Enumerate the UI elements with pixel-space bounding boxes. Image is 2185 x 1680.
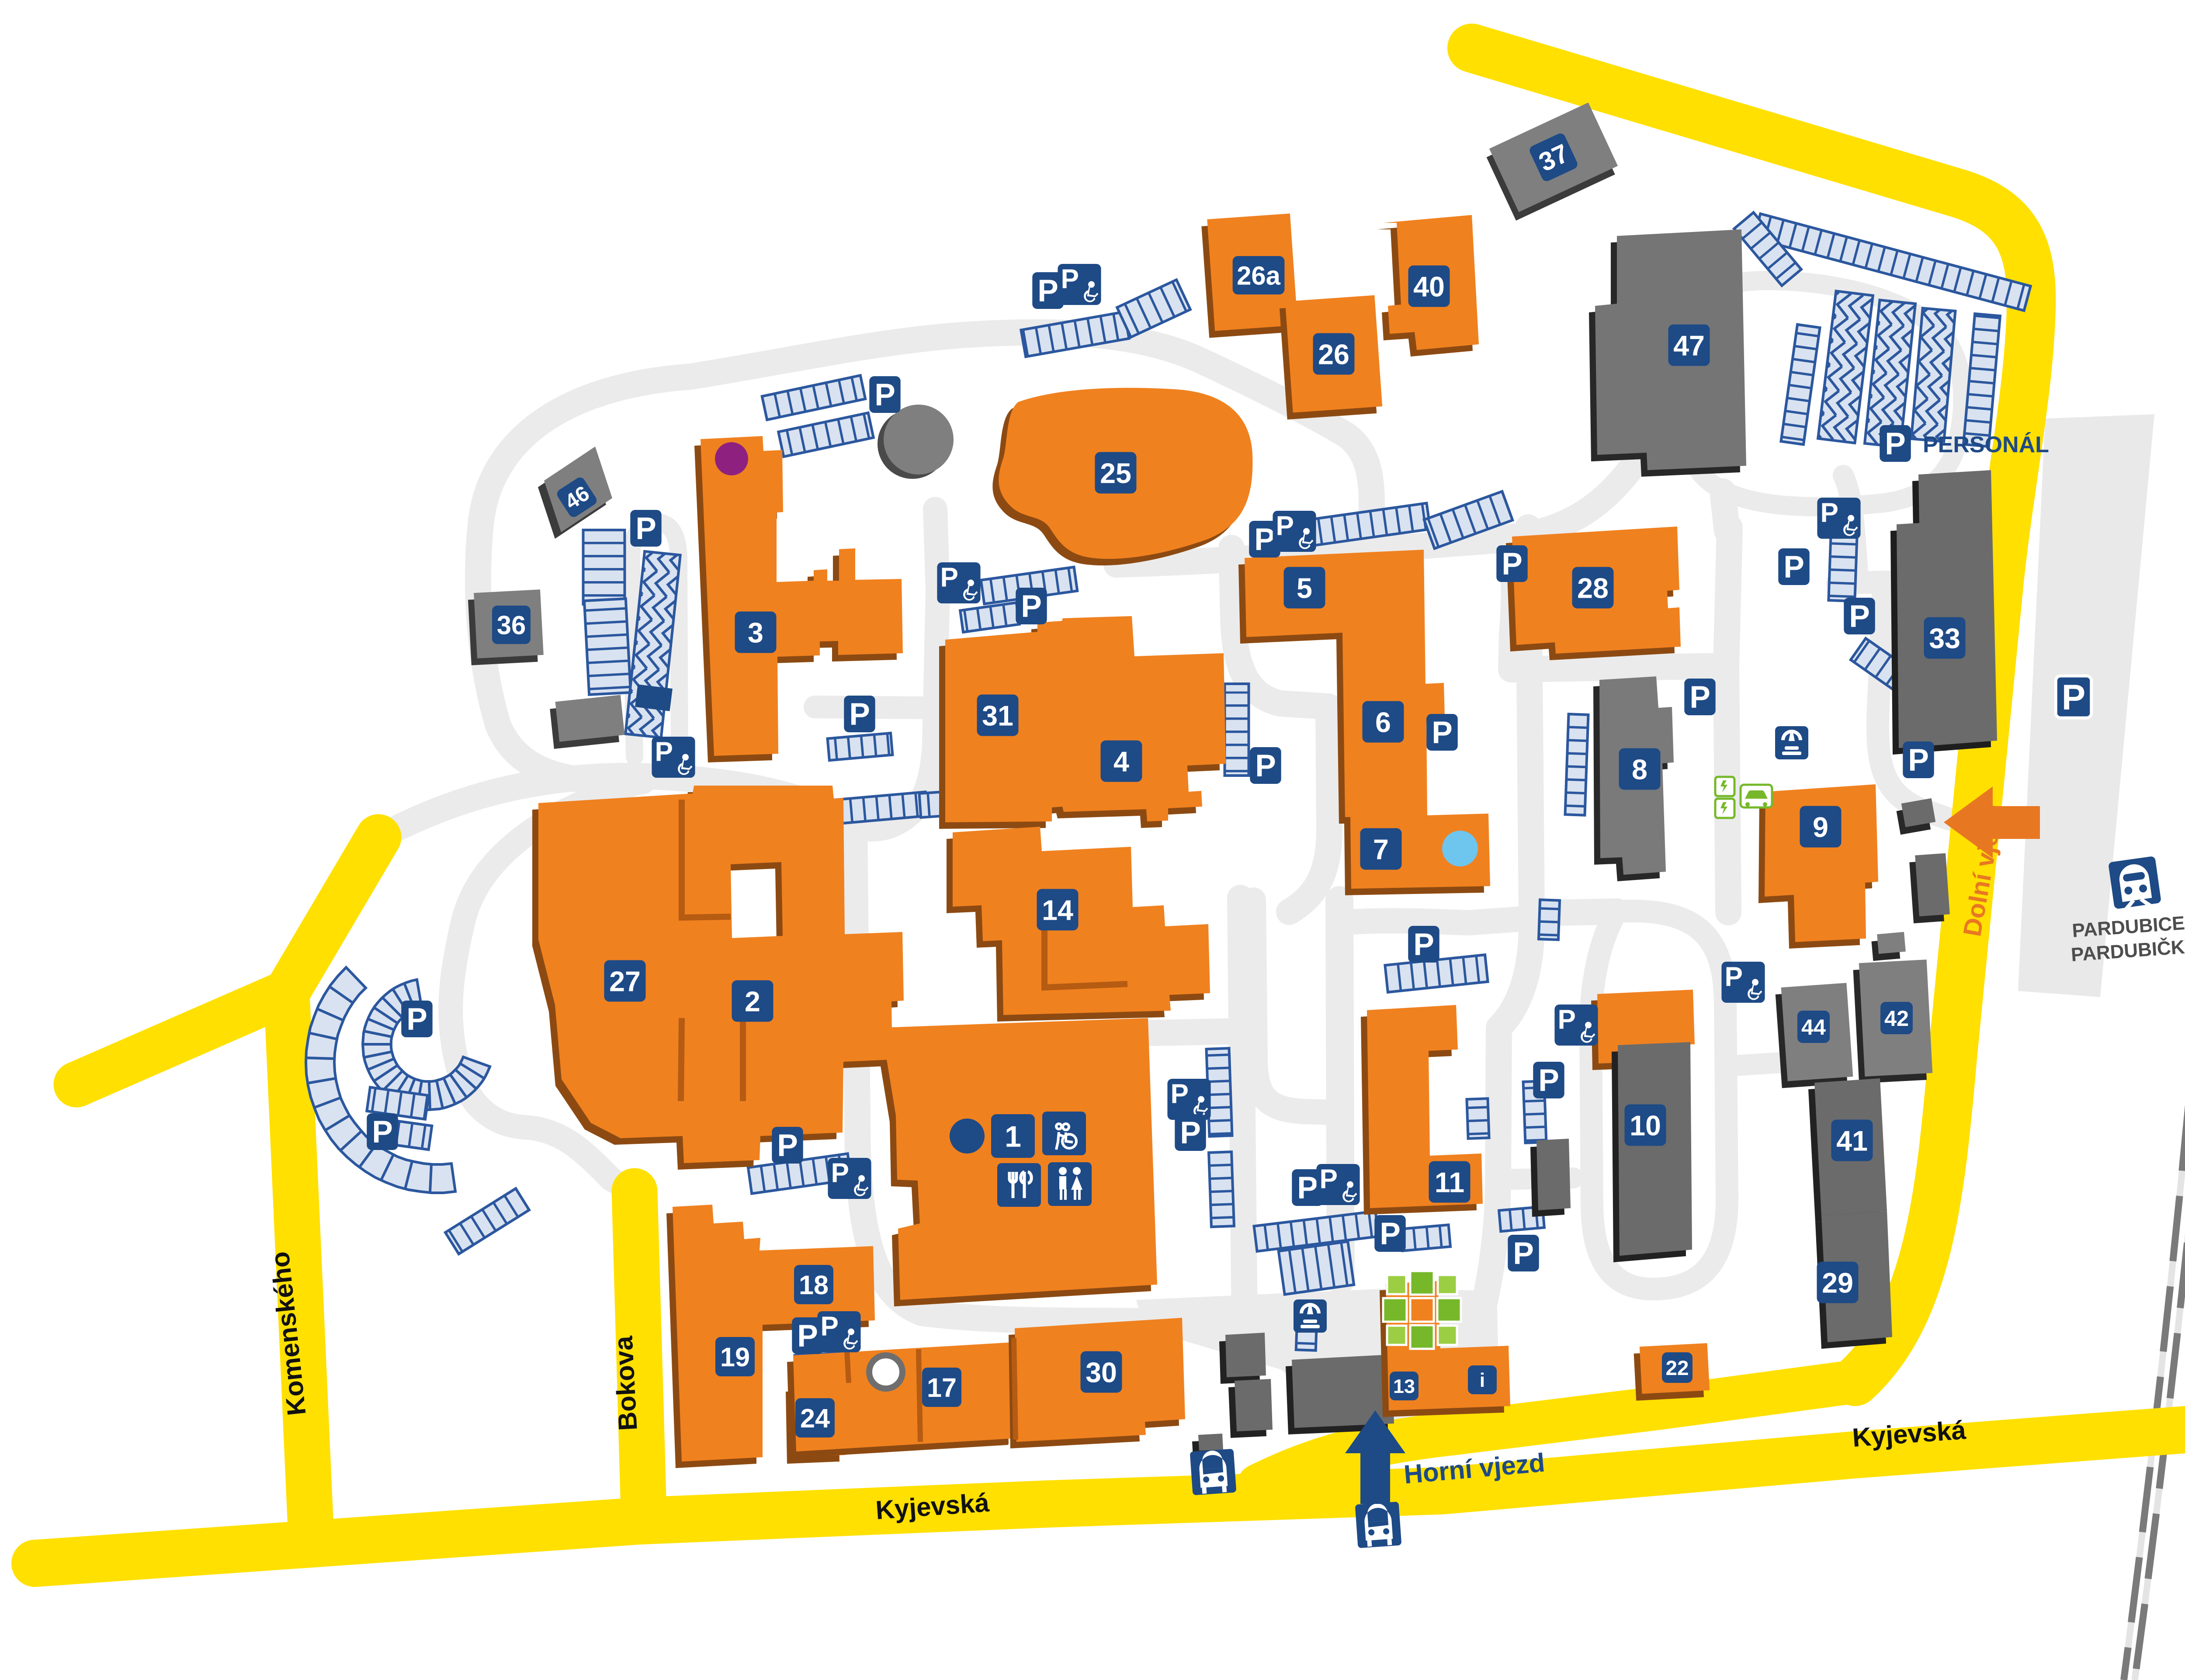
svg-text:6: 6 <box>1375 707 1391 738</box>
svg-text:P: P <box>1255 748 1276 783</box>
svg-text:P: P <box>831 1158 849 1188</box>
svg-text:P: P <box>1513 1236 1534 1271</box>
svg-text:40: 40 <box>1413 271 1445 302</box>
svg-text:P: P <box>820 1311 838 1341</box>
svg-text:P: P <box>1557 1005 1575 1035</box>
svg-text:17: 17 <box>927 1373 957 1403</box>
svg-text:P: P <box>777 1128 798 1163</box>
svg-text:P: P <box>1502 547 1523 582</box>
svg-text:P: P <box>849 697 870 732</box>
svg-text:27: 27 <box>609 966 641 997</box>
svg-text:P: P <box>1297 1171 1318 1205</box>
svg-text:44: 44 <box>1801 1015 1826 1039</box>
svg-text:P: P <box>1538 1063 1559 1098</box>
svg-text:P: P <box>372 1115 393 1150</box>
svg-text:22: 22 <box>1666 1357 1689 1380</box>
svg-text:3: 3 <box>748 617 763 648</box>
svg-text:P: P <box>1319 1164 1337 1194</box>
svg-text:29: 29 <box>1822 1267 1853 1299</box>
svg-text:9: 9 <box>1813 811 1828 843</box>
svg-text:P: P <box>1820 498 1838 528</box>
svg-text:13: 13 <box>1393 1375 1415 1397</box>
svg-text:10: 10 <box>1630 1110 1661 1141</box>
svg-text:41: 41 <box>1836 1125 1868 1157</box>
svg-text:P: P <box>1021 589 1042 624</box>
svg-text:18: 18 <box>799 1270 829 1300</box>
svg-text:25: 25 <box>1100 457 1131 489</box>
svg-text:4: 4 <box>1113 746 1129 777</box>
svg-text:26: 26 <box>1318 339 1349 370</box>
svg-text:PERSONÁL: PERSONÁL <box>1923 432 2049 457</box>
svg-text:26a: 26a <box>1237 261 1281 291</box>
svg-text:33: 33 <box>1929 623 1960 654</box>
svg-text:P: P <box>1724 962 1742 992</box>
svg-text:19: 19 <box>720 1342 750 1372</box>
svg-text:P: P <box>1254 522 1275 557</box>
svg-text:28: 28 <box>1577 572 1609 604</box>
svg-text:P: P <box>1783 550 1804 585</box>
svg-text:11: 11 <box>1435 1167 1464 1198</box>
svg-text:2: 2 <box>745 986 760 1017</box>
svg-text:P: P <box>1170 1079 1188 1109</box>
svg-text:P: P <box>2062 678 2085 717</box>
svg-text:31: 31 <box>982 700 1013 731</box>
svg-text:47: 47 <box>1673 330 1705 361</box>
svg-text:7: 7 <box>1373 834 1389 865</box>
svg-text:P: P <box>1061 264 1079 294</box>
svg-text:P: P <box>1885 426 1906 461</box>
svg-text:P: P <box>1180 1115 1201 1150</box>
svg-text:14: 14 <box>1042 894 1073 926</box>
svg-text:P: P <box>1413 927 1434 962</box>
svg-text:30: 30 <box>1086 1357 1117 1388</box>
svg-text:i: i <box>1480 1369 1485 1391</box>
svg-text:P: P <box>1276 511 1294 541</box>
svg-text:24: 24 <box>800 1403 830 1433</box>
svg-text:P: P <box>655 737 673 767</box>
svg-text:P: P <box>874 378 895 412</box>
svg-text:1: 1 <box>1005 1120 1021 1153</box>
svg-text:P: P <box>940 562 958 592</box>
svg-text:P: P <box>635 511 656 546</box>
svg-text:P: P <box>406 1002 427 1037</box>
svg-text:Bokova: Bokova <box>608 1335 642 1431</box>
svg-text:P: P <box>797 1319 818 1354</box>
svg-text:36: 36 <box>497 611 526 640</box>
svg-text:P: P <box>1689 680 1710 715</box>
svg-text:P: P <box>1908 743 1929 778</box>
svg-text:5: 5 <box>1297 572 1312 604</box>
svg-text:8: 8 <box>1632 754 1647 785</box>
svg-text:42: 42 <box>1884 1006 1909 1031</box>
svg-text:P: P <box>1037 274 1058 308</box>
svg-text:P: P <box>1380 1216 1401 1251</box>
svg-text:P: P <box>1432 715 1453 750</box>
svg-text:P: P <box>1849 599 1870 634</box>
